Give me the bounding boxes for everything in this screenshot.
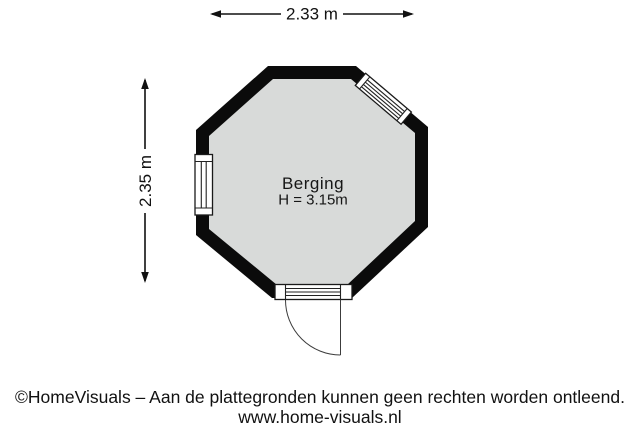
floorplan-page: 2.33 m 2.35 m [0,0,640,430]
door [275,285,352,356]
arrow-up-icon [141,78,149,89]
room-height-label: H = 3.15m [278,192,348,209]
height-dimension-arrow: 2.35 m [136,78,155,283]
room-name-label: Berging [282,174,344,193]
floor-plan-drawing: 2.33 m 2.35 m [0,0,640,430]
window-left [195,155,213,216]
width-dimension-label: 2.33 m [286,5,338,24]
footer-disclaimer: ©HomeVisuals – Aan de plattegronden kunn… [0,387,640,407]
door-swing-arc [286,300,341,355]
arrow-right-icon [403,10,414,18]
height-dimension-label: 2.35 m [136,155,155,207]
footer-url: www.home-visuals.nl [0,407,640,427]
arrow-down-icon [141,272,149,283]
width-dimension-arrow: 2.33 m [210,5,414,24]
arrow-left-icon [210,10,221,18]
footer: ©HomeVisuals – Aan de plattegronden kunn… [0,387,640,427]
